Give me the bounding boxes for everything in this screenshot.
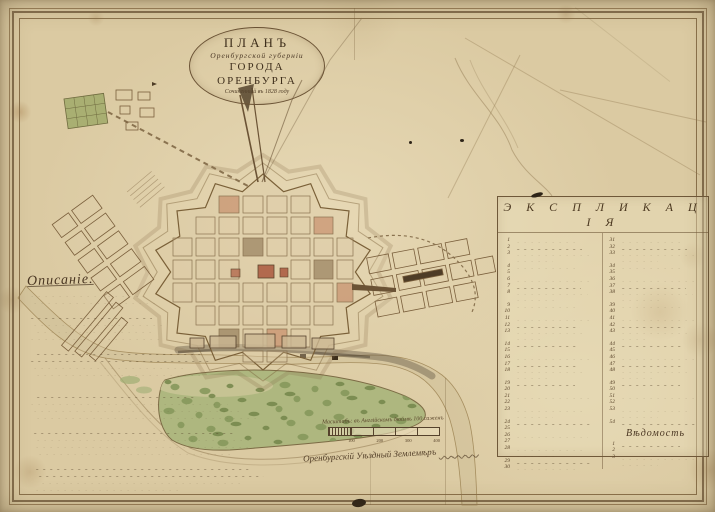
script-line: nnnnnnnnnnnnnnnnnnnnnnnnnnnnnnnnnnnnnnnn…: [513, 386, 582, 392]
city-block: [291, 306, 310, 325]
script-line: nnnnnnnnnnnnnnnnnnnnnnnnnnnnnnnnnnnnnnnn…: [618, 269, 690, 275]
explication-row: 8nnnnnnnnnnnnnnnnnnnnnnnnnnnnnnnnnnnnnnn…: [501, 289, 599, 301]
explication-row-number: 47: [606, 361, 615, 367]
map-date-line: Сочиненный въ 1828 году: [225, 89, 289, 97]
explication-row-number: 9: [501, 302, 510, 308]
explication-row-number: 54: [606, 419, 615, 425]
script-line: nnnnnnnnnnnnnnnnnnnnnnnnnnnnnnnnnnnnnnnn…: [513, 393, 589, 399]
explication-row: 33nnnnnnnnnnnnnnnnnnnnnnnnnnnnnnnnnnnnnn…: [606, 250, 705, 262]
explication-row-text: nnnnnnnnnnnnnnnnnnnnnnnnnnnnnnnnnnnnnnnn…: [618, 308, 705, 314]
explication-row: 19nnnnnnnnnnnnnnnnnnnnnnnnnnnnnnnnnnnnnn…: [501, 380, 599, 386]
script-line: nnnnnnnnnnnnnnnnnnnnnnnnnnnnnnnnnnnnnnnn…: [513, 438, 577, 444]
description-header: Описаніе.: [27, 266, 267, 290]
explication-row: 18nnnnnnnnnnnnnnnnnnnnnnnnnnnnnnnnnnnnnn…: [501, 367, 599, 379]
city-block: [314, 306, 333, 325]
scale-bar: [328, 427, 440, 436]
explication-row-number: 50: [606, 386, 615, 392]
explication-row: 1nnnnnnnnnnnnnnnnnnnnnnnnnnnnnnnnnnnnnnn…: [606, 441, 705, 447]
explication-row-number: 44: [606, 341, 615, 347]
explication-row: 23nnnnnnnnnnnnnnnnnnnnnnnnnnnnnnnnnnnnnn…: [501, 406, 599, 418]
city-block: [291, 238, 310, 256]
explication-row: 51nnnnnnnnnnnnnnnnnnnnnnnnnnnnnnnnnnnnnn…: [606, 393, 705, 399]
description-script-line: nnnnnnnnnnnnnnnnnnnnnnnnnnnnnnnnnnnnnnnn…: [27, 334, 159, 340]
explication-row-text: nnnnnnnnnnnnnnnnnnnnnnnnnnnnnnnnnnnnnnnn…: [618, 283, 705, 289]
description-script-line: nnnnnnnnnnnnnnnnnnnnnnnnnnnnnnnnnnnnnnnn…: [27, 291, 145, 297]
map-sheet: ПЛАНЪ Оренбургской губерніи ГОРОДА ОРЕНБ…: [0, 0, 715, 512]
city-block: [291, 260, 310, 279]
explication-row-text: nnnnnnnnnnnnnnnnnnnnnnnnnnnnnnnnnnnnnnnn…: [513, 458, 599, 464]
description-script-line: nnnnnnnnnnnnnnnnnnnnnnnnnnnnnnnnnnnnnnnn…: [27, 420, 261, 426]
explication-row: 40nnnnnnnnnnnnnnnnnnnnnnnnnnnnnnnnnnnnnn…: [606, 308, 705, 314]
explication-row: 11nnnnnnnnnnnnnnnnnnnnnnnnnnnnnnnnnnnnnn…: [501, 315, 599, 321]
explication-row-number: 15: [501, 347, 510, 353]
explication-row-text: nnnnnnnnnnnnnnnnnnnnnnnnnnnnnnnnnnnnnnnn…: [513, 341, 599, 347]
explication-row: 30nnnnnnnnnnnnnnnnnnnnnnnnnnnnnnnnnnnnnn…: [501, 464, 599, 470]
description-script-line: nnnnnnnnnnnnnnnnnnnnnnnnnnnnnnnnnnnnnnnn…: [30, 363, 184, 369]
city-block: [243, 217, 263, 234]
city-block: [219, 238, 239, 256]
explication-row: 10nnnnnnnnnnnnnnnnnnnnnnnnnnnnnnnnnnnnnn…: [501, 308, 599, 314]
script-line: nnnnnnnnnnnnnnnnnnnnnnnnnnnnnnnnnnnnnnnn…: [618, 334, 648, 340]
explication-row: 25nnnnnnnnnnnnnnnnnnnnnnnnnnnnnnnnnnnnnn…: [501, 425, 599, 431]
explication-column-left: 1nnnnnnnnnnnnnnnnnnnnnnnnnnnnnnnnnnnnnnn…: [498, 233, 603, 469]
explication-row-text: nnnnnnnnnnnnnnnnnnnnnnnnnnnnnnnnnnnnnnnn…: [513, 347, 599, 353]
script-line: nnnnnnnnnnnnnnnnnnnnnnnnnnnnnnnnnnnnnnnn…: [513, 283, 581, 289]
script-line: nnnnnnnnnnnnnnnnnnnnnnnnnnnnnnnnnnnnnnnn…: [618, 441, 680, 447]
city-block: [267, 306, 287, 325]
script-line: nnnnnnnnnnnnnnnnnnnnnnnnnnnnnnnnnnnnnnnn…: [618, 386, 687, 392]
city-block: [219, 196, 239, 213]
script-line: nnnnnnnnnnnnnnnnnnnnnnnnnnnnnnnnnnnnnnnn…: [513, 354, 590, 360]
explication-row: 32nnnnnnnnnnnnnnnnnnnnnnnnnnnnnnnnnnnnnn…: [606, 244, 705, 250]
explication-row-number: 18: [501, 367, 510, 379]
explication-panel: Э К С П Л И К А Ц І Я 1nnnnnnnnnnnnnnnnn…: [497, 196, 709, 457]
explication-row: 4nnnnnnnnnnnnnnnnnnnnnnnnnnnnnnnnnnnnnnn…: [501, 263, 599, 269]
explication-row-number: 24: [501, 419, 510, 425]
explication-row-text: nnnnnnnnnnnnnnnnnnnnnnnnnnnnnnnnnnnnnnnn…: [618, 250, 705, 262]
explication-row-text: nnnnnnnnnnnnnnnnnnnnnnnnnnnnnnnnnnnnnnnn…: [618, 399, 705, 405]
explication-row-number: 7: [501, 283, 510, 289]
scale-tick-label: 300: [405, 438, 412, 443]
explication-row: 42nnnnnnnnnnnnnnnnnnnnnnnnnnnnnnnnnnnnnn…: [606, 322, 705, 328]
explication-row: 53nnnnnnnnnnnnnnnnnnnnnnnnnnnnnnnnnnnnnn…: [606, 406, 705, 418]
suburb-east: [367, 234, 500, 317]
explication-row-number: 38: [606, 289, 615, 301]
description-script-line: nnnnnnnnnnnnnnnnnnnnnnnnnnnnnnnnnnnnnnnn…: [27, 356, 210, 362]
explication-row-text: nnnnnnnnnnnnnnnnnnnnnnnnnnnnnnnnnnnnnnnn…: [513, 361, 599, 367]
scale-tick-labels: 100200300400: [328, 438, 440, 443]
explication-row: 15nnnnnnnnnnnnnnnnnnnnnnnnnnnnnnnnnnnnnn…: [501, 347, 599, 353]
city-block: [267, 196, 287, 213]
explication-row-text: nnnnnnnnnnnnnnnnnnnnnnnnnnnnnnnnnnnnnnnn…: [618, 328, 705, 340]
description-script-line: nnnnnnnnnnnnnnnnnnnnnnnnnnnnnnnnnnnnnnnn…: [33, 327, 156, 333]
explication-row-number: 3: [606, 454, 615, 466]
explication-row-text: nnnnnnnnnnnnnnnnnnnnnnnnnnnnnnnnnnnnnnnn…: [513, 367, 599, 379]
description-script-line: nnnnnnnnnnnnnnnnnnnnnnnnnnnnnnnnnnnnnnnn…: [32, 442, 259, 448]
city-block: [314, 283, 333, 302]
explication-row: 29nnnnnnnnnnnnnnnnnnnnnnnnnnnnnnnnnnnnnn…: [501, 458, 599, 464]
explication-row-number: 37: [606, 283, 615, 289]
city-block: [243, 196, 263, 213]
explication-row: 2nnnnnnnnnnnnnnnnnnnnnnnnnnnnnnnnnnnnnnn…: [606, 447, 705, 453]
explication-row-number: 43: [606, 328, 615, 340]
script-line: nnnnnnnnnnnnnnnnnnnnnnnnnnnnnnnnnnnnnnnn…: [513, 373, 548, 379]
map-subtitle-province: Оренбургской губерніи: [210, 51, 303, 60]
explication-row-text: nnnnnnnnnnnnnnnnnnnnnnnnnnnnnnnnnnnnnnnn…: [513, 269, 599, 275]
title-cartouche: ПЛАНЪ Оренбургской губерніи ГОРОДА ОРЕНБ…: [189, 27, 325, 105]
script-line: nnnnnnnnnnnnnnnnnnnnnnnnnnnnnnnnnnnnnnnn…: [513, 412, 553, 418]
explication-row-number: 4: [501, 263, 510, 269]
explication-row-text: nnnnnnnnnnnnnnnnnnnnnnnnnnnnnnnnnnnnnnnn…: [618, 380, 705, 386]
city-block: [337, 283, 353, 302]
explication-row: 2nnnnnnnnnnnnnnnnnnnnnnnnnnnnnnnnnnnnnnn…: [501, 244, 599, 250]
explication-row-number: 51: [606, 393, 615, 399]
script-line: nnnnnnnnnnnnnnnnnnnnnnnnnnnnnnnnnnnnnnnn…: [513, 399, 578, 405]
script-line: nnnnnnnnnnnnnnnnnnnnnnnnnnnnnnnnnnnnnnnn…: [618, 447, 687, 453]
city-block: [267, 283, 287, 302]
script-line: nnnnnnnnnnnnnnnnnnnnnnnnnnnnnnnnnnnnnnnn…: [618, 373, 653, 379]
explication-row-number: 33: [606, 250, 615, 262]
script-line: nnnnnnnnnnnnnnnnnnnnnnnnnnnnnnnnnnnnnnnn…: [513, 334, 543, 340]
script-line: nnnnnnnnnnnnnnnnnnnnnnnnnnnnnnnnnnnnnnnn…: [513, 341, 576, 347]
script-line: nnnnnnnnnnnnnnnnnnnnnnnnnnnnnnnnnnnnnnnn…: [618, 354, 695, 360]
script-line: nnnnnnnnnnnnnnnnnnnnnnnnnnnnnnnnnnnnnnnn…: [618, 237, 680, 243]
explication-row: 48nnnnnnnnnnnnnnnnnnnnnnnnnnnnnnnnnnnnnn…: [606, 367, 705, 379]
description-script-line: nnnnnnnnnnnnnnnnnnnnnnnnnnnnnnnnnnnnnnnn…: [33, 413, 256, 419]
explication-row-text: nnnnnnnnnnnnnnnnnnnnnnnnnnnnnnnnnnnnnnnn…: [618, 289, 705, 301]
explication-row-number: 22: [501, 399, 510, 405]
script-line: nnnnnnnnnnnnnnnnnnnnnnnnnnnnnnnnnnnnnnnn…: [513, 322, 580, 328]
explication-row-text: nnnnnnnnnnnnnnnnnnnnnnnnnnnnnnnnnnnnnnnn…: [513, 432, 599, 438]
script-line: nnnnnnnnnnnnnnnnnnnnnnnnnnnnnnnnnnnnnnnn…: [513, 315, 591, 321]
city-block: [267, 217, 287, 234]
explication-column-right: 31nnnnnnnnnnnnnnnnnnnnnnnnnnnnnnnnnnnnnn…: [603, 233, 708, 469]
city-block: [196, 238, 215, 256]
explication-row: 45nnnnnnnnnnnnnnnnnnnnnnnnnnnnnnnnnnnnnn…: [606, 347, 705, 353]
explication-row: 7nnnnnnnnnnnnnnnnnnnnnnnnnnnnnnnnnnnnnnn…: [501, 283, 599, 289]
city-block: [219, 217, 239, 234]
explication-row: 49nnnnnnnnnnnnnnnnnnnnnnnnnnnnnnnnnnnnnn…: [606, 380, 705, 386]
description-script-line: nnnnnnnnnnnnnnnnnnnnnnnnnnnnnnnnnnnnnnnn…: [33, 370, 200, 376]
explication-row: 37nnnnnnnnnnnnnnnnnnnnnnnnnnnnnnnnnnnnnn…: [606, 283, 705, 289]
explication-row: 9nnnnnnnnnnnnnnnnnnnnnnnnnnnnnnnnnnnnnnn…: [501, 302, 599, 308]
explication-row-text: nnnnnnnnnnnnnnnnnnnnnnnnnnnnnnnnnnnnnnnn…: [513, 237, 599, 243]
script-line: nnnnnnnnnnnnnnnnnnnnnnnnnnnnnnnnnnnnnnnn…: [618, 361, 684, 367]
explication-row-number: 23: [501, 406, 510, 418]
explication-row-text: nnnnnnnnnnnnnnnnnnnnnnnnnnnnnnnnnnnnnnnn…: [618, 269, 705, 275]
settlement-northwest: [64, 93, 108, 128]
explication-row-number: 28: [501, 445, 510, 457]
explication-header: Э К С П Л И К А Ц І Я: [498, 197, 708, 233]
city-block: [337, 260, 353, 279]
explication-row: 14nnnnnnnnnnnnnnnnnnnnnnnnnnnnnnnnnnnnnn…: [501, 341, 599, 347]
script-line: nnnnnnnnnnnnnnnnnnnnnnnnnnnnnnnnnnnnnnnn…: [513, 458, 591, 464]
script-line: nnnnnnnnnnnnnnnnnnnnnnnnnnnnnnnnnnnnnnnn…: [618, 256, 658, 262]
explication-row-text: nnnnnnnnnnnnnnnnnnnnnnnnnnnnnnnnnnnnnnnn…: [513, 283, 599, 289]
city-block: [337, 238, 353, 256]
explication-row: 27nnnnnnnnnnnnnnnnnnnnnnnnnnnnnnnnnnnnnn…: [501, 438, 599, 444]
description-script-line: nnnnnnnnnnnnnnnnnnnnnnnnnnnnnnnnnnnnnnnn…: [38, 478, 240, 484]
explication-row: 52nnnnnnnnnnnnnnnnnnnnnnnnnnnnnnnnnnnnnn…: [606, 399, 705, 405]
explication-row: 24nnnnnnnnnnnnnnnnnnnnnnnnnnnnnnnnnnnnnn…: [501, 419, 599, 425]
explication-row-number: 11: [501, 315, 510, 321]
description-script-line: nnnnnnnnnnnnnnnnnnnnnnnnnnnnnnnnnnnnnnnn…: [30, 428, 235, 434]
description-script-line: nnnnnnnnnnnnnnnnnnnnnnnnnnnnnnnnnnnnnnnn…: [38, 456, 247, 462]
explication-row-text: nnnnnnnnnnnnnnnnnnnnnnnnnnnnnnnnnnnnnnnn…: [618, 322, 705, 328]
explication-row-text: nnnnnnnnnnnnnnnnnnnnnnnnnnnnnnnnnnnnnnnn…: [513, 419, 599, 425]
description-script-line: nnnnnnnnnnnnnnnnnnnnnnnnnnnnnnnnnnnnnnnn…: [30, 384, 181, 390]
explication-row-number: 32: [606, 244, 615, 250]
script-line: nnnnnnnnnnnnnnnnnnnnnnnnnnnnnnnnnnnnnnnn…: [618, 419, 697, 425]
explication-row: 46nnnnnnnnnnnnnnnnnnnnnnnnnnnnnnnnnnnnnn…: [606, 354, 705, 360]
explication-row-number: 8: [501, 289, 510, 301]
explication-row-text: nnnnnnnnnnnnnnnnnnnnnnnnnnnnnnnnnnnnnnnn…: [513, 250, 599, 262]
explication-row-number: 13: [501, 328, 510, 340]
script-line: nnnnnnnnnnnnnnnnnnnnnnnnnnnnnnnnnnnnnnnn…: [513, 237, 575, 243]
ink-dot: [409, 141, 412, 144]
explication-row: 13nnnnnnnnnnnnnnnnnnnnnnnnnnnnnnnnnnnnnn…: [501, 328, 599, 340]
explication-row-text: nnnnnnnnnnnnnnnnnnnnnnnnnnnnnnnnnnnnnnnn…: [618, 315, 705, 321]
explication-row-text: nnnnnnnnnnnnnnnnnnnnnnnnnnnnnnnnnnnnnnnn…: [513, 445, 599, 457]
explication-row-number: 31: [606, 237, 615, 243]
explication-row: 47nnnnnnnnnnnnnnnnnnnnnnnnnnnnnnnnnnnnnn…: [606, 361, 705, 367]
explication-row-text: nnnnnnnnnnnnnnnnnnnnnnnnnnnnnnnnnnnnnnnn…: [618, 244, 705, 250]
city-block: [196, 217, 215, 234]
city-block: [243, 238, 263, 256]
explication-row-text: nnnnnnnnnnnnnnnnnnnnnnnnnnnnnnnnnnnnnnnn…: [618, 367, 705, 379]
script-line: nnnnnnnnnnnnnnnnnnnnnnnnnnnnnnnnnnnnnnnn…: [618, 308, 689, 314]
description-script-line: nnnnnnnnnnnnnnnnnnnnnnnnnnnnnnnnnnnnnnnn…: [30, 341, 151, 347]
script-line: nnnnnnnnnnnnnnnnnnnnnnnnnnnnnnnnnnnnnnnn…: [618, 347, 688, 353]
explication-row-text: nnnnnnnnnnnnnnnnnnnnnnnnnnnnnnnnnnnnnnnn…: [618, 441, 705, 447]
explication-row: 26nnnnnnnnnnnnnnnnnnnnnnnnnnnnnnnnnnnnnn…: [501, 432, 599, 438]
explication-row-text: nnnnnnnnnnnnnnnnnnnnnnnnnnnnnnnnnnnnnnnn…: [513, 386, 599, 392]
script-line: nnnnnnnnnnnnnnnnnnnnnnnnnnnnnnnnnnnnnnnn…: [513, 308, 584, 314]
description-script-line: nnnnnnnnnnnnnnnnnnnnnnnnnnnnnnnnnnnnnnnn…: [35, 471, 266, 477]
explication-row: 36nnnnnnnnnnnnnnnnnnnnnnnnnnnnnnnnnnnnnn…: [606, 276, 705, 282]
script-line: nnnnnnnnnnnnnnnnnnnnnnnnnnnnnnnnnnnnnnnn…: [513, 347, 583, 353]
script-line: nnnnnnnnnnnnnnnnnnnnnnnnnnnnnnnnnnnnnnnn…: [618, 399, 683, 405]
script-line: nnnnnnnnnnnnnnnnnnnnnnnnnnnnnnnnnnnnnnnn…: [513, 244, 582, 250]
description-script-line: nnnnnnnnnnnnnnnnnnnnnnnnnnnnnnnnnnnnnnnn…: [33, 435, 249, 441]
map-title: ПЛАНЪ: [224, 35, 290, 51]
city-block: [314, 217, 333, 234]
explication-row-text: nnnnnnnnnnnnnnnnnnnnnnnnnnnnnnnnnnnnnnnn…: [513, 315, 599, 321]
explication-row-text: nnnnnnnnnnnnnnnnnnnnnnnnnnnnnnnnnnnnnnnn…: [513, 406, 599, 418]
explication-row-text: nnnnnnnnnnnnnnnnnnnnnnnnnnnnnnnnnnnnnnnn…: [618, 341, 705, 347]
explication-row-number: 45: [606, 347, 615, 353]
script-line: nnnnnnnnnnnnnnnnnnnnnnnnnnnnnnnnnnnnnnnn…: [618, 341, 681, 347]
explication-row: 12nnnnnnnnnnnnnnnnnnnnnnnnnnnnnnnnnnnnnn…: [501, 322, 599, 328]
explication-row: 6nnnnnnnnnnnnnnnnnnnnnnnnnnnnnnnnnnnnnnn…: [501, 276, 599, 282]
explication-row: 3nnnnnnnnnnnnnnnnnnnnnnnnnnnnnnnnnnnnnnn…: [501, 250, 599, 262]
explication-row-number: 12: [501, 322, 510, 328]
scale-tick-label: 100: [348, 438, 355, 443]
explication-row-number: 46: [606, 354, 615, 360]
explication-row-number: 2: [606, 447, 615, 453]
description-script-line: nnnnnnnnnnnnnnnnnnnnnnnnnnnnnnnnnnnnnnnn…: [33, 392, 197, 398]
explication-row-number: 14: [501, 341, 510, 347]
explication-row-text: nnnnnnnnnnnnnnnnnnnnnnnnnnnnnnnnnnnnnnnn…: [618, 447, 705, 453]
city-block: [314, 260, 333, 279]
explication-row: 34nnnnnnnnnnnnnnnnnnnnnnnnnnnnnnnnnnnnnn…: [606, 263, 705, 269]
city-block: [267, 238, 287, 256]
script-line: nnnnnnnnnnnnnnnnnnnnnnnnnnnnnnnnnnnnnnnn…: [618, 412, 658, 418]
explication-row-number: 27: [501, 438, 510, 444]
script-line: nnnnnnnnnnnnnnnnnnnnnnnnnnnnnnnnnnnnnnnn…: [618, 393, 694, 399]
description-script-line: nnnnnnnnnnnnnnnnnnnnnnnnnnnnnnnnnnnnnnnn…: [33, 305, 169, 311]
explication-row: 44nnnnnnnnnnnnnnnnnnnnnnnnnnnnnnnnnnnnnn…: [606, 341, 705, 347]
script-line: nnnnnnnnnnnnnnnnnnnnnnnnnnnnnnnnnnnnnnnn…: [513, 380, 575, 386]
description-script-line: nnnnnnnnnnnnnnnnnnnnnnnnnnnnnnnnnnnnnnnn…: [30, 320, 164, 326]
explication-row-number: 1: [501, 237, 510, 243]
explication-row: 43nnnnnnnnnnnnnnnnnnnnnnnnnnnnnnnnnnnnnn…: [606, 328, 705, 340]
scale-tick-label: 200: [376, 438, 383, 443]
explication-row-text: nnnnnnnnnnnnnnnnnnnnnnnnnnnnnnnnnnnnnnnn…: [513, 308, 599, 314]
explication-row-number: 52: [606, 399, 615, 405]
vedomost-header: Вѣдомость: [606, 428, 705, 439]
script-line: nnnnnnnnnnnnnnnnnnnnnnnnnnnnnnnnnnnnnnnn…: [513, 256, 553, 262]
script-line: nnnnnnnnnnnnnnnnnnnnnnnnnnnnnnnnnnnnnnnn…: [618, 460, 658, 466]
explication-row-number: 39: [606, 302, 615, 308]
explication-row: 5nnnnnnnnnnnnnnnnnnnnnnnnnnnnnnnnnnnnnnn…: [501, 269, 599, 275]
description-script-line: nnnnnnnnnnnnnnnnnnnnnnnnnnnnnnnnnnnnnnnn…: [30, 298, 157, 304]
script-line: nnnnnnnnnnnnnnnnnnnnnnnnnnnnnnnnnnnnnnnn…: [618, 380, 680, 386]
explication-row-text: nnnnnnnnnnnnnnnnnnnnnnnnnnnnnnnnnnnnnnnn…: [618, 454, 705, 466]
script-line: nnnnnnnnnnnnnnnnnnnnnnnnnnnnnnnnnnnnnnnn…: [513, 425, 581, 431]
explication-row-text: nnnnnnnnnnnnnnnnnnnnnnnnnnnnnnnnnnnnnnnn…: [513, 438, 599, 444]
explication-row-number: 40: [606, 308, 615, 314]
explication-row-number: 6: [501, 276, 510, 282]
description-block: Описаніе. nnnnnnnnnnnnnnnnnnnnnnnnnnnnnn…: [27, 270, 267, 499]
description-script-line: nnnnnnnnnnnnnnnnnnnnnnnnnnnnnnnnnnnnnnnn…: [30, 406, 242, 412]
description-script-line: nnnnnnnnnnnnnnnnnnnnnnnnnnnnnnnnnnnnnnnn…: [33, 349, 203, 355]
explication-row-number: 48: [606, 367, 615, 379]
explication-row-number: 1: [606, 441, 615, 447]
explication-row-number: 3: [501, 250, 510, 262]
explication-row-number: 5: [501, 269, 510, 275]
script-line: nnnnnnnnnnnnnnnnnnnnnnnnnnnnnnnnnnnnnnnn…: [513, 295, 558, 301]
script-line: nnnnnnnnnnnnnnnnnnnnnnnnnnnnnnnnnnnnnnnn…: [618, 244, 687, 250]
city-block: [291, 217, 310, 234]
explication-row-text: nnnnnnnnnnnnnnnnnnnnnnnnnnnnnnnnnnnnnnnn…: [513, 244, 599, 250]
city-block: [291, 196, 310, 213]
explication-row: 17nnnnnnnnnnnnnnnnnnnnnnnnnnnnnnnnnnnnnn…: [501, 361, 599, 367]
script-line: nnnnnnnnnnnnnnnnnnnnnnnnnnnnnnnnnnnnnnnn…: [618, 302, 682, 308]
settlement-northwest-buildings: [116, 82, 157, 130]
script-line: nnnnnnnnnnnnnnnnnnnnnnnnnnnnnnnnnnnnnnnn…: [513, 269, 585, 275]
explication-row: 38nnnnnnnnnnnnnnnnnnnnnnnnnnnnnnnnnnnnnn…: [606, 289, 705, 301]
explication-row-text: nnnnnnnnnnnnnnnnnnnnnnnnnnnnnnnnnnnnnnnn…: [618, 354, 705, 360]
explication-row-number: 16: [501, 354, 510, 360]
explication-row-text: nnnnnnnnnnnnnnnnnnnnnnnnnnnnnnnnnnnnnnnn…: [618, 406, 705, 418]
explication-row-text: nnnnnnnnnnnnnnnnnnnnnnnnnnnnnnnnnnnnnnnn…: [513, 399, 599, 405]
explication-row: 3nnnnnnnnnnnnnnnnnnnnnnnnnnnnnnnnnnnnnnn…: [606, 454, 705, 466]
city-block: [267, 351, 287, 362]
explication-row-number: 19: [501, 380, 510, 386]
description-script-line: nnnnnnnnnnnnnnnnnnnnnnnnnnnnnnnnnnnnnnnn…: [27, 377, 207, 383]
description-script-line: nnnnnnnnnnnnnnnnnnnnnnnnnnnnnnnnnnnnnnnn…: [32, 464, 252, 470]
explication-row-text: nnnnnnnnnnnnnnnnnnnnnnnnnnnnnnnnnnnnnnnn…: [513, 393, 599, 399]
description-script-line: nnnnnnnnnnnnnnnnnnnnnnnnnnnnnnnnnnnnnnnn…: [27, 313, 152, 319]
description-script-line: nnnnnnnnnnnnnnnnnnnnnnnnnnnnnnnnnnnnnnnn…: [35, 492, 165, 498]
explication-row-text: nnnnnnnnnnnnnnnnnnnnnnnnnnnnnnnnnnnnnnnn…: [513, 380, 599, 386]
explication-row-number: 26: [501, 432, 510, 438]
explication-row: 20nnnnnnnnnnnnnnnnnnnnnnnnnnnnnnnnnnnnnn…: [501, 386, 599, 392]
explication-row-text: nnnnnnnnnnnnnnnnnnnnnnnnnnnnnnnnnnnnnnnn…: [513, 322, 599, 328]
faint-roads: [448, 38, 706, 198]
explication-row-number: 49: [606, 380, 615, 386]
explication-row: 31nnnnnnnnnnnnnnnnnnnnnnnnnnnnnnnnnnnnnn…: [606, 237, 705, 243]
map-subtitle-city: ГОРОДА ОРЕНБУРГА: [190, 61, 324, 89]
description-script-line: nnnnnnnnnnnnnnnnnnnnnnnnnnnnnnnnnnnnnnnn…: [32, 485, 182, 491]
explication-row-number: 34: [606, 263, 615, 269]
explication-row-text: nnnnnnnnnnnnnnnnnnnnnnnnnnnnnnnnnnnnnnnn…: [513, 302, 599, 308]
explication-row-text: nnnnnnnnnnnnnnnnnnnnnnnnnnnnnnnnnnnnnnnn…: [513, 464, 599, 470]
explication-row-text: nnnnnnnnnnnnnnnnnnnnnnnnnnnnnnnnnnnnnnnn…: [513, 276, 599, 282]
explication-row: 35nnnnnnnnnnnnnnnnnnnnnnnnnnnnnnnnnnnnnn…: [606, 269, 705, 275]
script-line: nnnnnnnnnnnnnnnnnnnnnnnnnnnnnnnnnnnnnnnn…: [513, 302, 577, 308]
explication-row-number: 2: [501, 244, 510, 250]
script-line: nnnnnnnnnnnnnnnnnnnnnnnnnnnnnnnnnnnnnnnn…: [618, 315, 696, 321]
explication-row: 28nnnnnnnnnnnnnnnnnnnnnnnnnnnnnnnnnnnnnn…: [501, 445, 599, 457]
ink-dot: [460, 139, 464, 142]
script-line: nnnnnnnnnnnnnnnnnnnnnnnnnnnnnnnnnnnnnnnn…: [513, 361, 579, 367]
explication-row: 22nnnnnnnnnnnnnnnnnnnnnnnnnnnnnnnnnnnnnn…: [501, 399, 599, 405]
city-block: [173, 238, 192, 256]
explication-row-text: nnnnnnnnnnnnnnnnnnnnnnnnnnnnnnnnnnnnnnnn…: [618, 347, 705, 353]
explication-row-number: 21: [501, 393, 510, 399]
explication-row-number: 20: [501, 386, 510, 392]
scale-tick-label: 400: [433, 438, 440, 443]
explication-row-text: nnnnnnnnnnnnnnnnnnnnnnnnnnnnnnnnnnnnnnnn…: [618, 393, 705, 399]
explication-row-text: nnnnnnnnnnnnnnnnnnnnnnnnnnnnnnnnnnnnnnnn…: [618, 263, 705, 269]
script-line: nnnnnnnnnnnnnnnnnnnnnnnnnnnnnnnnnnnnnnnn…: [513, 451, 558, 457]
explication-row-number: 36: [606, 276, 615, 282]
explication-row-text: nnnnnnnnnnnnnnnnnnnnnnnnnnnnnnnnnnnnnnnn…: [618, 237, 705, 243]
explication-row-number: 30: [501, 464, 510, 470]
explication-row-number: 25: [501, 425, 510, 431]
explication-row-number: 41: [606, 315, 615, 321]
script-line: nnnnnnnnnnnnnnnnnnnnnnnnnnnnnnnnnnnnnnnn…: [513, 276, 592, 282]
explication-row: 16nnnnnnnnnnnnnnnnnnnnnnnnnnnnnnnnnnnnnn…: [501, 354, 599, 360]
explication-row-text: nnnnnnnnnnnnnnnnnnnnnnnnnnnnnnnnnnnnnnnn…: [618, 302, 705, 308]
description-script-line: nnnnnnnnnnnnnnnnnnnnnnnnnnnnnnnnnnnnnnnn…: [27, 399, 228, 405]
explication-row-text: nnnnnnnnnnnnnnnnnnnnnnnnnnnnnnnnnnnnnnnn…: [618, 386, 705, 392]
script-line: nnnnnnnnnnnnnnnnnnnnnnnnnnnnnnnnnnnnnnnn…: [618, 295, 663, 301]
script-line: nnnnnnnnnnnnnnnnnnnnnnnnnnnnnnnnnnnnnnnn…: [618, 283, 686, 289]
script-line: nnnnnnnnnnnnnnnnnnnnnnnnnnnnnnnnnnnnnnnn…: [513, 464, 580, 470]
explication-row-text: nnnnnnnnnnnnnnnnnnnnnnnnnnnnnnnnnnnnnnnn…: [618, 419, 705, 425]
city-block: [314, 238, 333, 256]
script-line: nnnnnnnnnnnnnnnnnnnnnnnnnnnnnnnnnnnnnnnn…: [618, 263, 683, 269]
script-line: nnnnnnnnnnnnnnnnnnnnnnnnnnnnnnnnnnnnnnnn…: [513, 432, 588, 438]
explication-row: 1nnnnnnnnnnnnnnnnnnnnnnnnnnnnnnnnnnnnnnn…: [501, 237, 599, 243]
explication-row: 54nnnnnnnnnnnnnnnnnnnnnnnnnnnnnnnnnnnnnn…: [606, 419, 705, 425]
explication-row: 39nnnnnnnnnnnnnnnnnnnnnnnnnnnnnnnnnnnnnn…: [606, 302, 705, 308]
script-line: nnnnnnnnnnnnnnnnnnnnnnnnnnnnnnnnnnnnnnnn…: [618, 276, 697, 282]
explication-row-text: nnnnnnnnnnnnnnnnnnnnnnnnnnnnnnnnnnnnnnnn…: [513, 328, 599, 340]
script-line: nnnnnnnnnnnnnnnnnnnnnnnnnnnnnnnnnnnnnnnn…: [513, 419, 592, 425]
explication-row-number: 42: [606, 322, 615, 328]
explication-row: 21nnnnnnnnnnnnnnnnnnnnnnnnnnnnnnnnnnnnnn…: [501, 393, 599, 399]
description-script-lines: nnnnnnnnnnnnnnnnnnnnnnnnnnnnnnnnnnnnnnnn…: [27, 291, 267, 498]
explication-row-text: nnnnnnnnnnnnnnnnnnnnnnnnnnnnnnnnnnnnnnnn…: [513, 354, 599, 360]
explication-row-number: 10: [501, 308, 510, 314]
explication-row: 41nnnnnnnnnnnnnnnnnnnnnnnnnnnnnnnnnnnnnn…: [606, 315, 705, 321]
explication-row-text: nnnnnnnnnnnnnnnnnnnnnnnnnnnnnnnnnnnnnnnn…: [513, 425, 599, 431]
explication-row-text: nnnnnnnnnnnnnnnnnnnnnnnnnnnnnnnnnnnnnnnn…: [618, 276, 705, 282]
